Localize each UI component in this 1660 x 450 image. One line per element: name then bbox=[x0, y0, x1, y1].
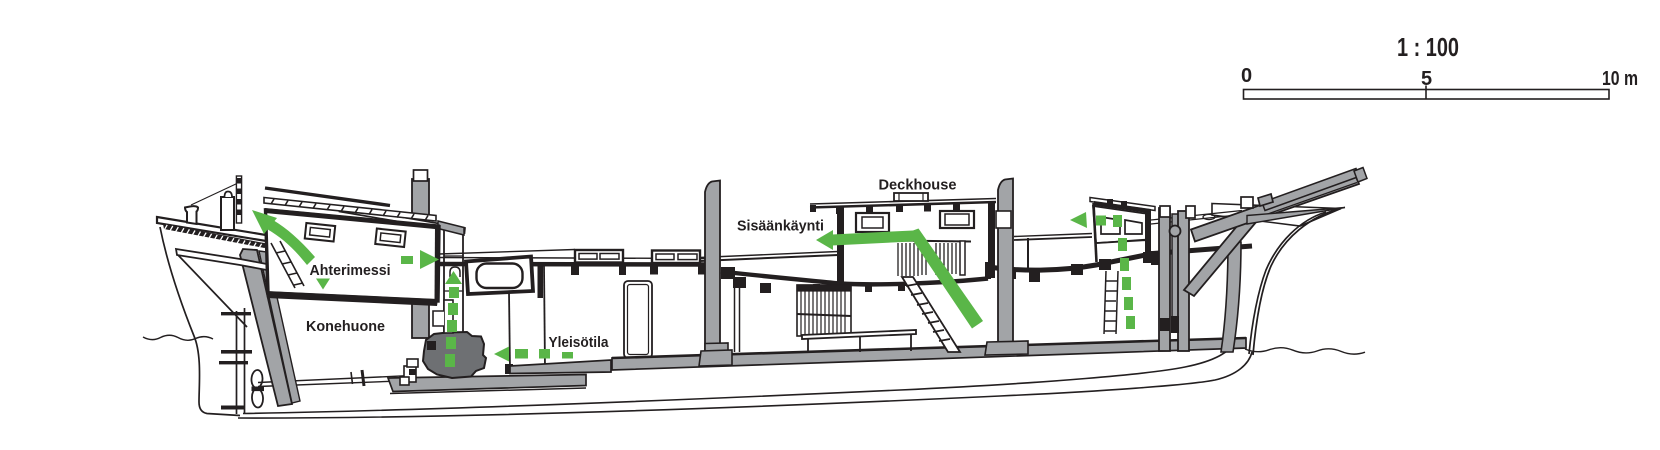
svg-text:10 m: 10 m bbox=[1602, 68, 1638, 90]
svg-text:Ahterimessi: Ahterimessi bbox=[310, 262, 391, 279]
svg-text:Deckhouse: Deckhouse bbox=[879, 177, 957, 194]
svg-text:1 : 100: 1 : 100 bbox=[1397, 32, 1459, 62]
svg-text:Sisäänkäynti: Sisäänkäynti bbox=[737, 218, 824, 235]
svg-text:Konehuone: Konehuone bbox=[306, 318, 385, 335]
svg-text:Yleisötila: Yleisötila bbox=[549, 334, 610, 351]
svg-text:0: 0 bbox=[1241, 65, 1252, 87]
